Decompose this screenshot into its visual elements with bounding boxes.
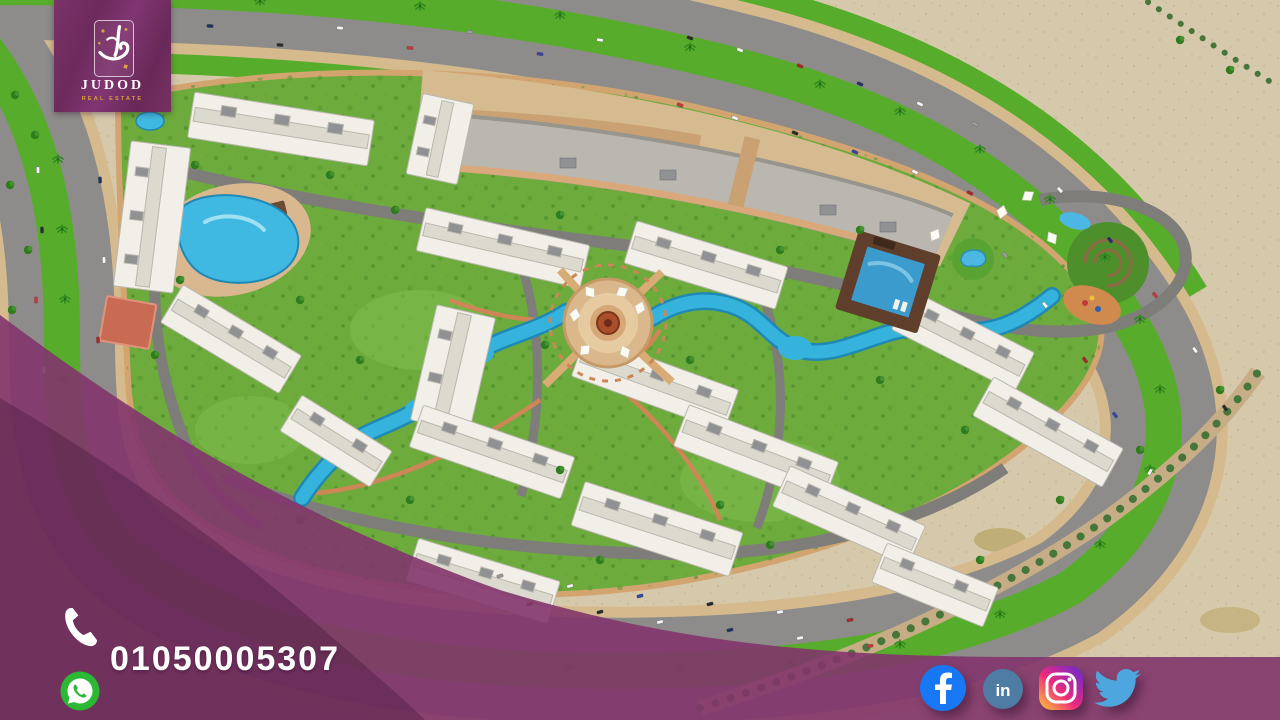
marketing-banner: JUDOD REAL ESTATE 01050005307 in Ju: [0, 0, 1280, 720]
instagram-icon[interactable]: [1038, 665, 1084, 711]
logo-calligraphy-frame: [94, 20, 134, 77]
logo-tagline: REAL ESTATE: [54, 96, 171, 102]
facebook-icon[interactable]: [919, 664, 967, 712]
social-bar: in Judodre: [0, 657, 1280, 720]
master-plan-render: [0, 0, 1280, 720]
twitter-icon[interactable]: [1092, 668, 1142, 710]
linkedin-icon[interactable]: in: [982, 668, 1024, 710]
sports-court: [99, 296, 156, 349]
arabic-calligraphy-icon: [95, 21, 131, 74]
logo-wordmark: JUDOD: [54, 78, 171, 94]
brand-logo: JUDOD REAL ESTATE: [54, 0, 171, 112]
svg-text:in: in: [995, 681, 1010, 700]
central-plaza: [545, 265, 672, 385]
